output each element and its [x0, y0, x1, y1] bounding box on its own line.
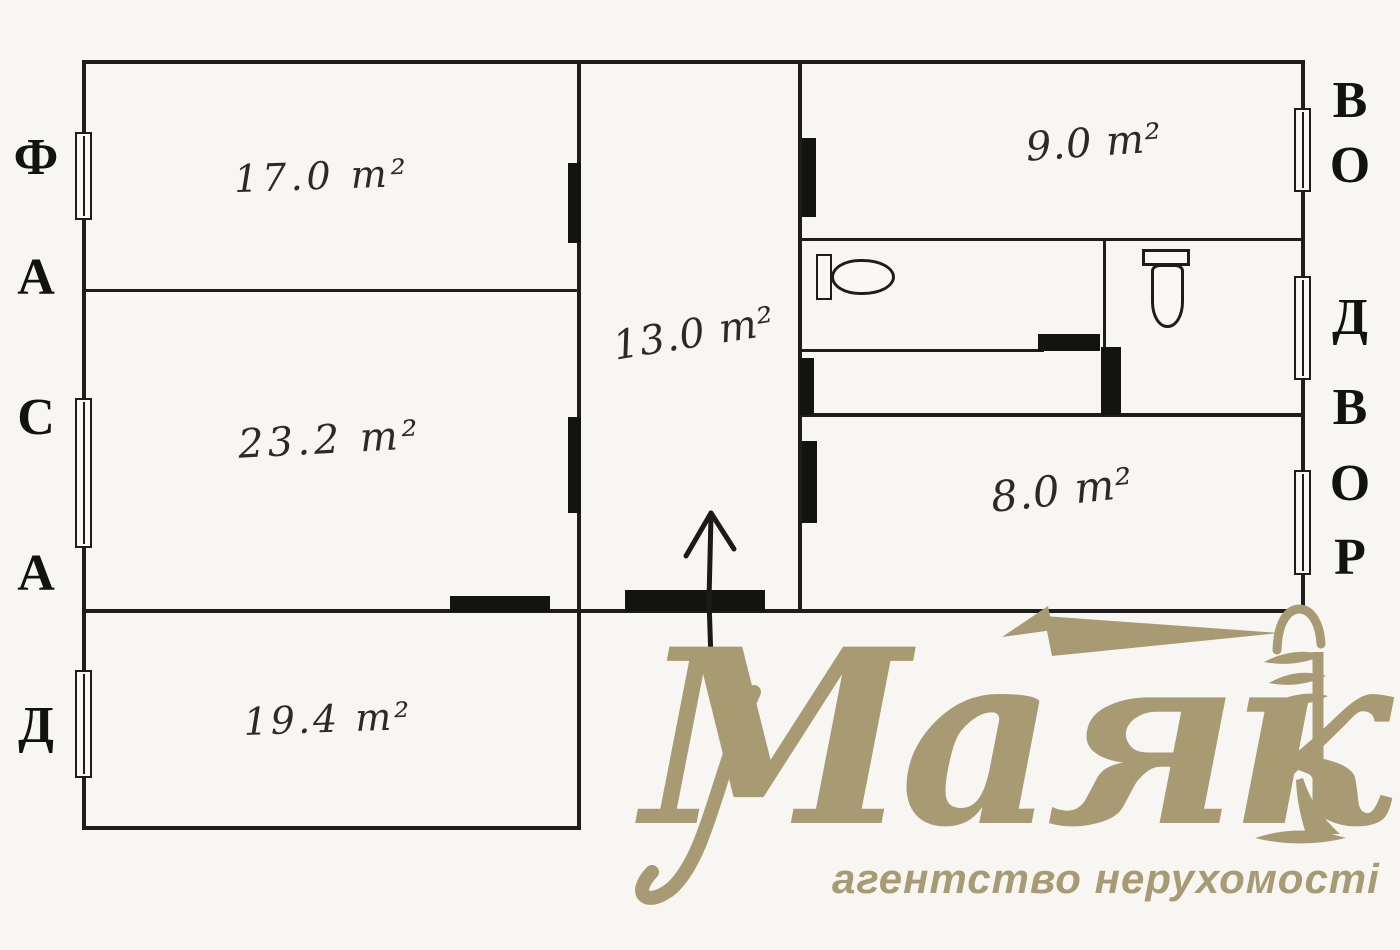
wall-room-8-top — [798, 413, 1305, 417]
wall-between-17-23 — [82, 289, 579, 292]
door-jamb-room-9 — [802, 138, 816, 217]
window-symbol-left-3 — [75, 670, 92, 778]
window-symbol-left-2 — [75, 398, 92, 548]
yard-letter-5: О — [1322, 458, 1378, 510]
yard-letter-6: Р — [1322, 532, 1378, 584]
wall-wc-divider — [1103, 238, 1106, 351]
door-jamb-room-23 — [568, 417, 581, 513]
sink-fixture-bowl — [831, 259, 895, 295]
wall-stub-wc — [1101, 347, 1121, 415]
facade-letter-5: Д — [8, 700, 64, 752]
sink-fixture-base — [816, 254, 832, 300]
area-label-room-19: 19.4 m² — [243, 694, 413, 744]
door-jamb-corridor — [800, 358, 814, 415]
door-sill-bathroom — [1038, 334, 1100, 351]
logo-tagline: агентство нерухомості — [832, 856, 1380, 902]
yard-letter-2: О — [1322, 140, 1378, 192]
wall-exterior-top — [82, 60, 1305, 64]
area-label-hall-13: 13.0 m² — [610, 299, 778, 370]
area-label-room-23: 23.2 m² — [237, 412, 423, 468]
yard-letter-3: Д — [1322, 292, 1378, 344]
logo-brand-wordmark: Маяк — [642, 618, 1383, 860]
facade-letter-2: А — [8, 252, 64, 304]
yard-letter-4: В — [1322, 382, 1378, 434]
area-label-room-8: 8.0 m² — [988, 458, 1135, 522]
facade-letter-3: С — [8, 392, 64, 444]
facade-letter-1: Ф — [8, 132, 64, 184]
window-symbol-right-1 — [1294, 108, 1311, 192]
window-symbol-right-2 — [1294, 276, 1311, 380]
floor-plan-scan: 17.0 m² 23.2 m² 19.4 m² 13.0 m² 9.0 m² 8… — [0, 0, 1400, 950]
window-symbol-right-3 — [1294, 470, 1311, 575]
area-label-room-17: 17.0 m² — [233, 151, 410, 201]
yard-letter-1: В — [1322, 75, 1378, 127]
toilet-fixture-bowl — [1151, 264, 1184, 328]
wall-below-room-9 — [798, 238, 1305, 241]
door-sill-room-23 — [450, 596, 550, 612]
door-jamb-room-8 — [802, 441, 817, 523]
window-symbol-left-1 — [75, 132, 92, 220]
door-jamb-room-17 — [568, 163, 581, 243]
area-label-room-9: 9.0 m² — [1024, 115, 1163, 170]
facade-letter-4: А — [8, 548, 64, 600]
wall-bottom-left-wing — [82, 826, 581, 830]
wall-bathroom-bottom — [798, 349, 1044, 352]
